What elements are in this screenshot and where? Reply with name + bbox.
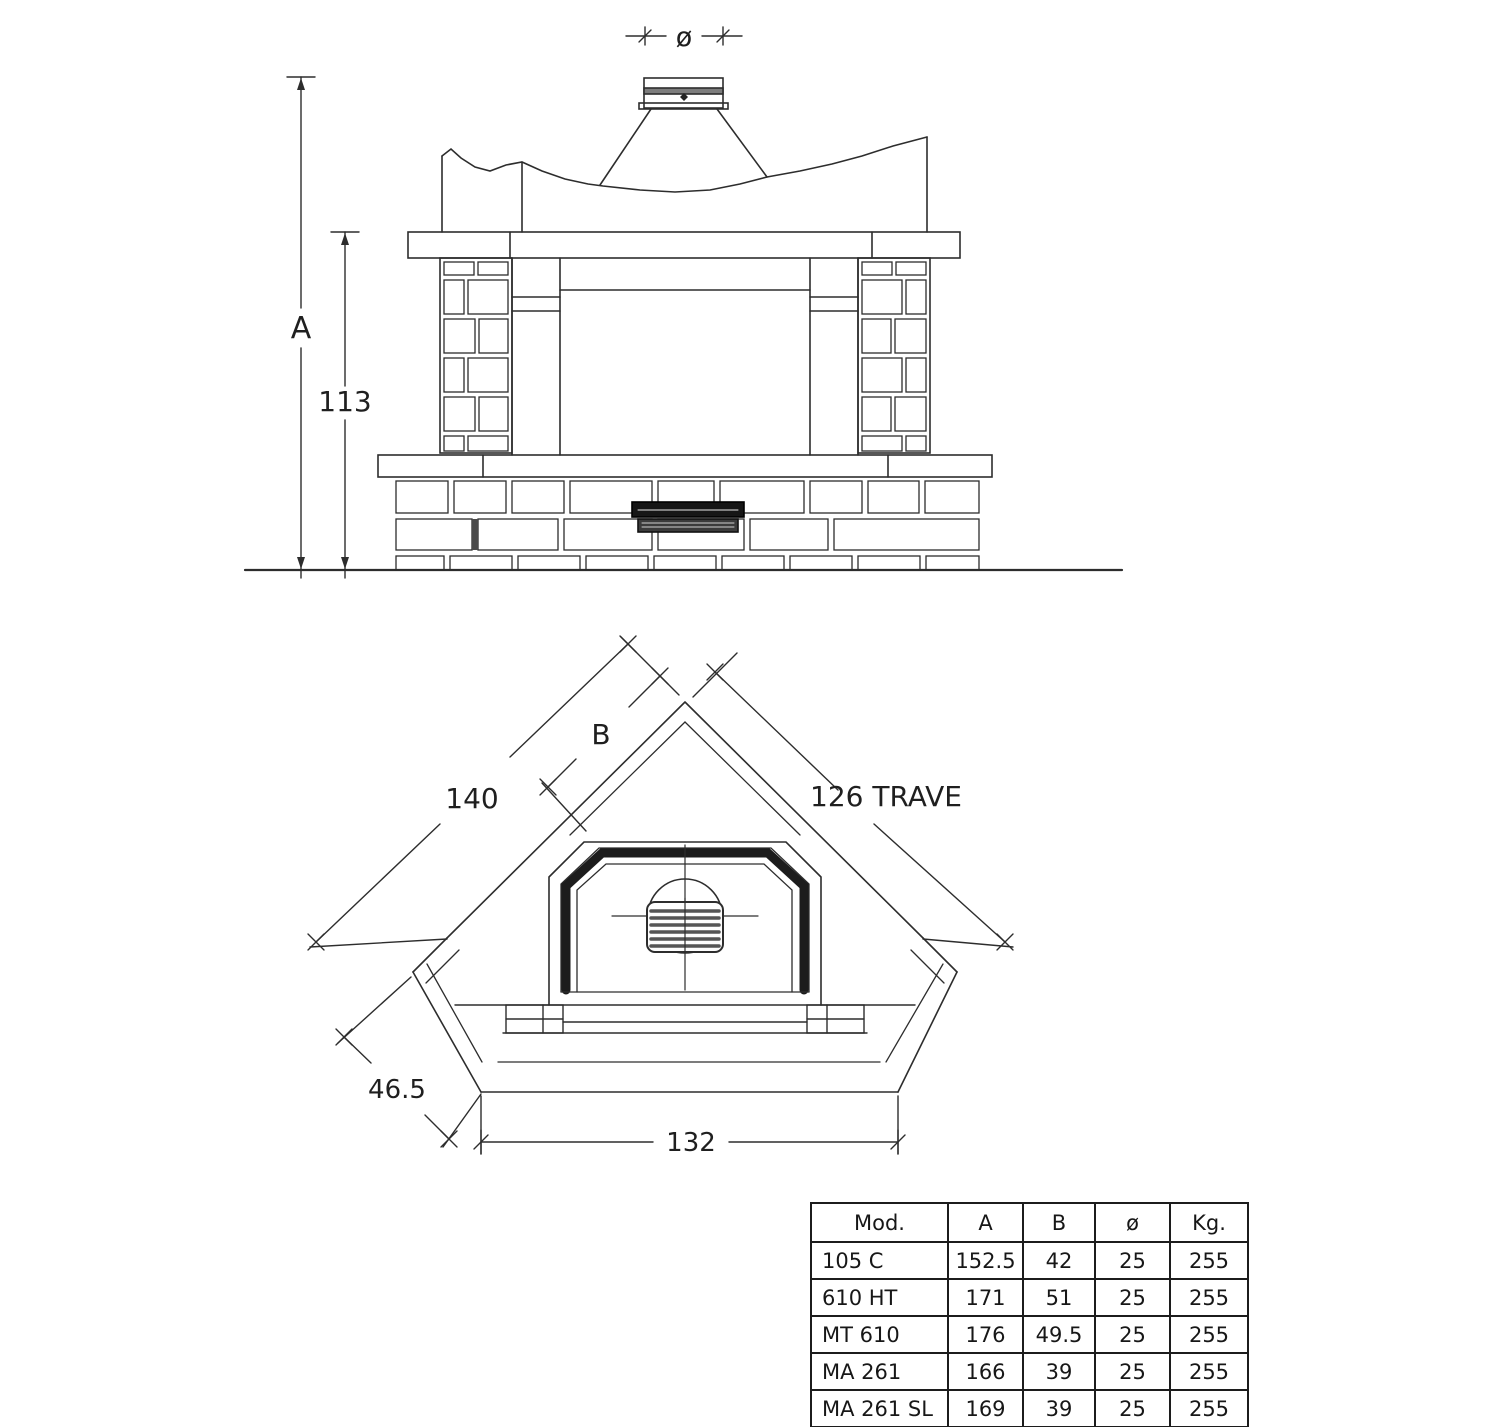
col-header-a: A bbox=[948, 1203, 1023, 1242]
cell-diameter: 25 bbox=[1095, 1279, 1170, 1316]
cell-kg: 255 bbox=[1170, 1316, 1248, 1353]
cell-mod: MA 261 SL bbox=[811, 1390, 948, 1427]
cell-a: 169 bbox=[948, 1390, 1023, 1427]
dim-label-a: A bbox=[291, 311, 312, 346]
cell-kg: 255 bbox=[1170, 1353, 1248, 1390]
model-dimensions-table: Mod. A B ø Kg. 105 C 152.5 42 25 255 610… bbox=[810, 1202, 1249, 1427]
cell-mod: MT 610 bbox=[811, 1316, 948, 1353]
cell-b: 39 bbox=[1023, 1353, 1095, 1390]
plan-flue-outlet bbox=[612, 845, 758, 990]
plan-dimensions: 140 B 126 TRAVE 46.5 132 bbox=[308, 636, 1013, 1158]
cell-b: 51 bbox=[1023, 1279, 1095, 1316]
table-row: MA 261 166 39 25 255 bbox=[811, 1353, 1248, 1390]
dim-label-b: B bbox=[591, 718, 610, 751]
left-brick-column bbox=[440, 258, 512, 453]
dim-label-diameter: ø bbox=[676, 22, 693, 53]
cell-diameter: 25 bbox=[1095, 1316, 1170, 1353]
plan-hearth bbox=[455, 1005, 915, 1033]
plan-view bbox=[413, 702, 957, 1092]
front-dimensions: A 113 ø bbox=[287, 22, 742, 578]
right-brick-column bbox=[858, 258, 930, 453]
cell-kg: 255 bbox=[1170, 1390, 1248, 1427]
firebox-opening bbox=[512, 258, 858, 455]
cell-a: 166 bbox=[948, 1353, 1023, 1390]
col-header-kg: Kg. bbox=[1170, 1203, 1248, 1242]
cell-a: 152.5 bbox=[948, 1242, 1023, 1279]
cell-kg: 255 bbox=[1170, 1242, 1248, 1279]
dim-label-113: 113 bbox=[318, 385, 371, 418]
col-header-b: B bbox=[1023, 1203, 1095, 1242]
dim-label-46-5: 46.5 bbox=[368, 1075, 426, 1105]
front-elevation bbox=[245, 78, 1122, 570]
cell-mod: 610 HT bbox=[811, 1279, 948, 1316]
table-row: MT 610 176 49.5 25 255 bbox=[811, 1316, 1248, 1353]
table-row: 105 C 152.5 42 25 255 bbox=[811, 1242, 1248, 1279]
fireplace-technical-drawing: A 113 ø bbox=[0, 0, 1500, 1427]
dim-label-132: 132 bbox=[666, 1128, 716, 1158]
base-air-grille bbox=[632, 502, 744, 532]
mantel-top bbox=[442, 137, 927, 232]
table-header-row: Mod. A B ø Kg. bbox=[811, 1203, 1248, 1242]
cell-b: 39 bbox=[1023, 1390, 1095, 1427]
cell-diameter: 25 bbox=[1095, 1353, 1170, 1390]
spec-table: Mod. A B ø Kg. 105 C 152.5 42 25 255 610… bbox=[810, 1202, 1251, 1427]
cell-a: 176 bbox=[948, 1316, 1023, 1353]
dim-label-140: 140 bbox=[445, 782, 498, 815]
cell-mod: 105 C bbox=[811, 1242, 948, 1279]
mantel-beam bbox=[408, 232, 960, 258]
cell-kg: 255 bbox=[1170, 1279, 1248, 1316]
bench-slab bbox=[378, 455, 992, 477]
cell-diameter: 25 bbox=[1095, 1390, 1170, 1427]
cell-diameter: 25 bbox=[1095, 1242, 1170, 1279]
technical-drawing-page: A 113 ø bbox=[0, 0, 1500, 1427]
table-row: MA 261 SL 169 39 25 255 bbox=[811, 1390, 1248, 1427]
dim-label-126-trave: 126 TRAVE bbox=[810, 780, 962, 813]
col-header-mod: Mod. bbox=[811, 1203, 948, 1242]
smoke-hood bbox=[600, 109, 767, 185]
cell-a: 171 bbox=[948, 1279, 1023, 1316]
col-header-diameter: ø bbox=[1095, 1203, 1170, 1242]
table-row: 610 HT 171 51 25 255 bbox=[811, 1279, 1248, 1316]
cell-b: 49.5 bbox=[1023, 1316, 1095, 1353]
chimney-flue bbox=[639, 78, 728, 109]
cell-mod: MA 261 bbox=[811, 1353, 948, 1390]
cell-b: 42 bbox=[1023, 1242, 1095, 1279]
